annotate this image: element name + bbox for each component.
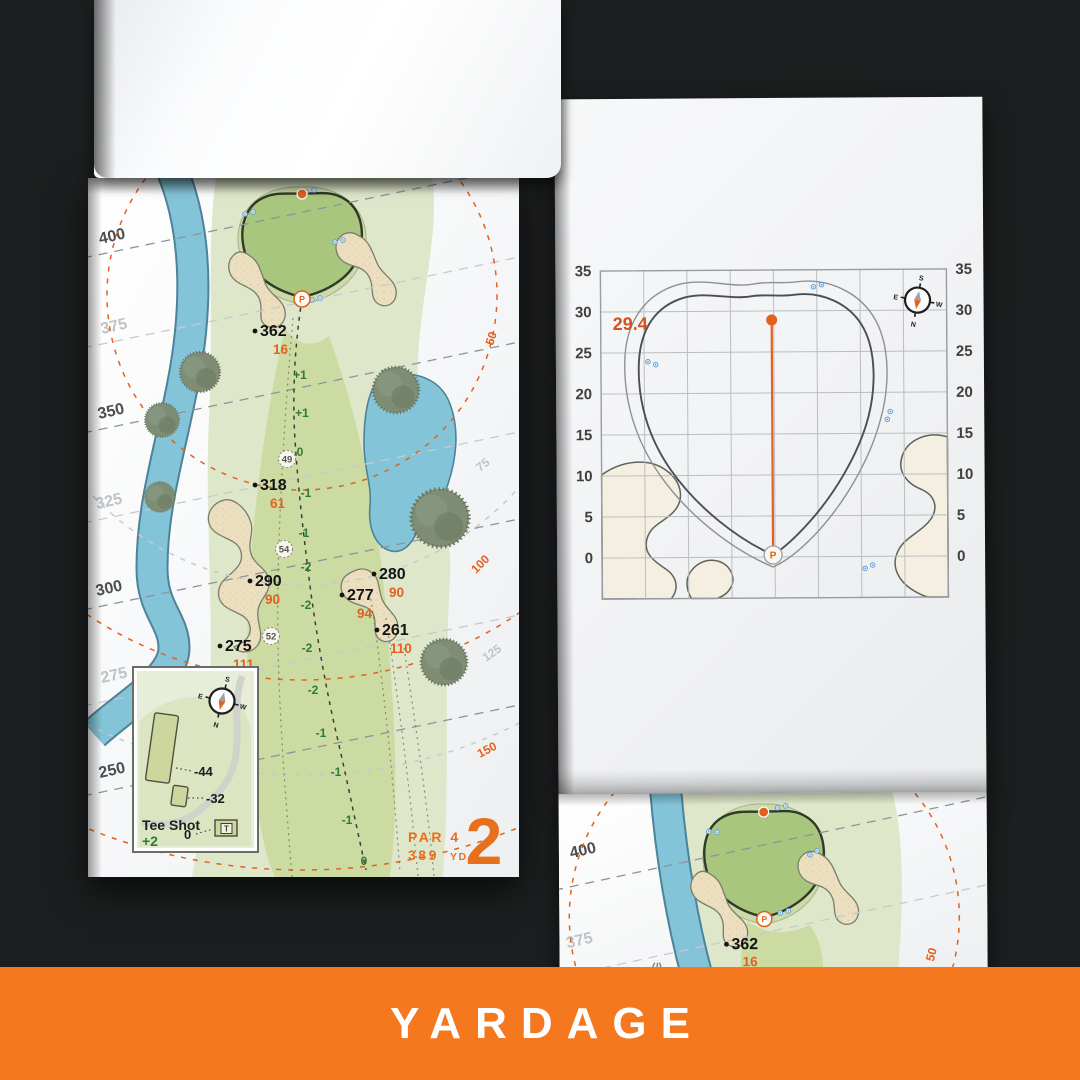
sprinkler-icon — [811, 282, 824, 289]
pin-marker-letter: P — [299, 295, 305, 305]
carry-distance: 280 — [379, 566, 406, 583]
elevation-label: -2 — [301, 598, 312, 612]
axis-tick: 20 — [575, 386, 592, 403]
remaining-distance: 94 — [357, 606, 373, 621]
tree-icon — [373, 367, 419, 413]
sprinkler-icon — [304, 188, 317, 195]
forward-tee-box — [171, 785, 189, 807]
elevation-label: -2 — [302, 641, 313, 655]
yards-value: 389 — [408, 847, 439, 863]
axis-tick: 20 — [956, 384, 973, 401]
remaining-distance: 16 — [273, 342, 289, 357]
hole-number: 2 — [466, 804, 503, 877]
axis-tick: 0 — [957, 548, 965, 565]
carry-distance: 275 — [225, 638, 252, 655]
pin-dot — [759, 807, 769, 817]
bunker — [894, 435, 948, 597]
remaining-distance: 90 — [389, 585, 404, 600]
elevation-label: -1 — [342, 813, 353, 827]
pin-dot — [297, 189, 307, 199]
compass-north: N — [910, 321, 916, 329]
remaining-distance: 110 — [390, 641, 412, 656]
tee-marker-icon: T — [215, 820, 237, 836]
pin-marker-letter: P — [761, 914, 767, 924]
elevation-label: -2 — [301, 560, 312, 574]
pin-position-marker: P — [757, 912, 772, 927]
carry-distance: 362 — [260, 323, 287, 340]
axis-tick: 15 — [576, 427, 593, 444]
pin-depth-label: 29.4 — [613, 314, 648, 334]
yardage-banner: YARDAGE — [0, 967, 1080, 1080]
carry-distance: 362 — [731, 936, 758, 953]
elevation-label: 0 — [361, 854, 368, 868]
remaining-distance: 61 — [270, 496, 286, 511]
green-outline-outer — [624, 281, 888, 568]
axis-tick: 25 — [956, 343, 973, 360]
elevation-label: 0 — [297, 445, 304, 459]
circled-distance: 52 — [266, 632, 277, 643]
next-hole-map-page: 400 375 50 362 16 P — [559, 792, 988, 980]
handicap-label: +2 — [142, 833, 158, 849]
axis-ticks-right: 35 30 25 20 15 10 5 0 — [955, 261, 974, 565]
banner-title: YARDAGE — [376, 999, 704, 1049]
axis-tick: 35 — [955, 261, 972, 278]
elevation-label: +1 — [293, 368, 307, 382]
axis-tick: 25 — [575, 345, 592, 362]
flipped-blank-page — [94, 0, 561, 178]
pin-position-marker: P — [294, 291, 310, 307]
axis-tick: 30 — [956, 302, 973, 319]
circled-distance: 54 — [279, 545, 290, 556]
pin-dot — [766, 314, 777, 325]
sprinkler-icon — [882, 408, 895, 422]
tree-icon — [421, 639, 467, 685]
hole-map-page: 400 375 350 325 300 275 250 50 75 100 1 — [88, 178, 519, 877]
sprinkler-markers — [644, 282, 896, 572]
elevation-label: -2 — [308, 683, 319, 697]
axis-tick: 35 — [575, 263, 592, 280]
next-hole-map-art: 400 375 50 362 16 P — [559, 792, 988, 980]
pin-marker-letter: P — [770, 550, 777, 561]
compass-south: S — [918, 275, 924, 283]
axis-tick: 10 — [957, 466, 974, 483]
axis-tick: 5 — [584, 509, 592, 526]
remaining-distance: 90 — [265, 592, 280, 607]
par-label: PAR 4 — [408, 829, 461, 845]
axis-tick: 30 — [575, 304, 592, 321]
elevation-label: -1 — [331, 765, 342, 779]
circled-distance: 49 — [282, 455, 293, 466]
right-book: 35 30 25 20 15 10 5 0 35 30 25 20 15 10 … — [554, 97, 987, 980]
tree-icon — [411, 489, 469, 547]
hole-map-art: 400 375 350 325 300 275 250 50 75 100 1 — [88, 178, 519, 877]
tree-icon — [145, 482, 175, 512]
green-grid-art: 35 30 25 20 15 10 5 0 35 30 25 20 15 10 … — [554, 97, 986, 795]
mockup-canvas: 400 375 350 325 300 275 250 50 75 100 1 — [0, 0, 1080, 1080]
carry-distance: 290 — [255, 573, 282, 590]
elevation-label: -1 — [301, 486, 312, 500]
tee-carry-label: -44 — [194, 764, 214, 779]
axis-tick: 5 — [957, 507, 965, 524]
elevation-label: -1 — [316, 726, 327, 740]
pin-position-marker: P — [764, 546, 782, 564]
compass-east: E — [893, 294, 899, 302]
axis-ticks-left: 35 30 25 20 15 10 5 0 — [575, 263, 594, 567]
elevation-label: +1 — [295, 406, 309, 420]
inset-tee-shot: -44 -32 0 T Tee Shot +2 — [133, 667, 258, 852]
tree-icon — [145, 403, 179, 437]
carry-distance: 261 — [382, 622, 409, 639]
elevation-label: -1 — [299, 526, 310, 540]
axis-tick: 15 — [956, 425, 973, 442]
bunker — [602, 462, 682, 599]
sprinkler-icon — [862, 562, 876, 571]
bunker — [687, 560, 733, 598]
green-detail-page: 35 30 25 20 15 10 5 0 35 30 25 20 15 10 … — [554, 97, 986, 795]
axis-tick: 10 — [576, 468, 593, 485]
inset-title: Tee Shot — [142, 817, 200, 833]
carry-distance: 277 — [347, 587, 374, 604]
tee-letter: T — [224, 825, 229, 834]
tee-carry-label: -32 — [206, 791, 225, 806]
sprinkler-icon — [645, 357, 659, 370]
tree-icon — [180, 352, 220, 392]
pin-depth-line — [772, 320, 773, 553]
compass-icon: S N W E — [889, 271, 947, 333]
compass-west: W — [935, 301, 943, 309]
carry-distance: 318 — [260, 477, 287, 494]
axis-tick: 0 — [585, 550, 593, 567]
